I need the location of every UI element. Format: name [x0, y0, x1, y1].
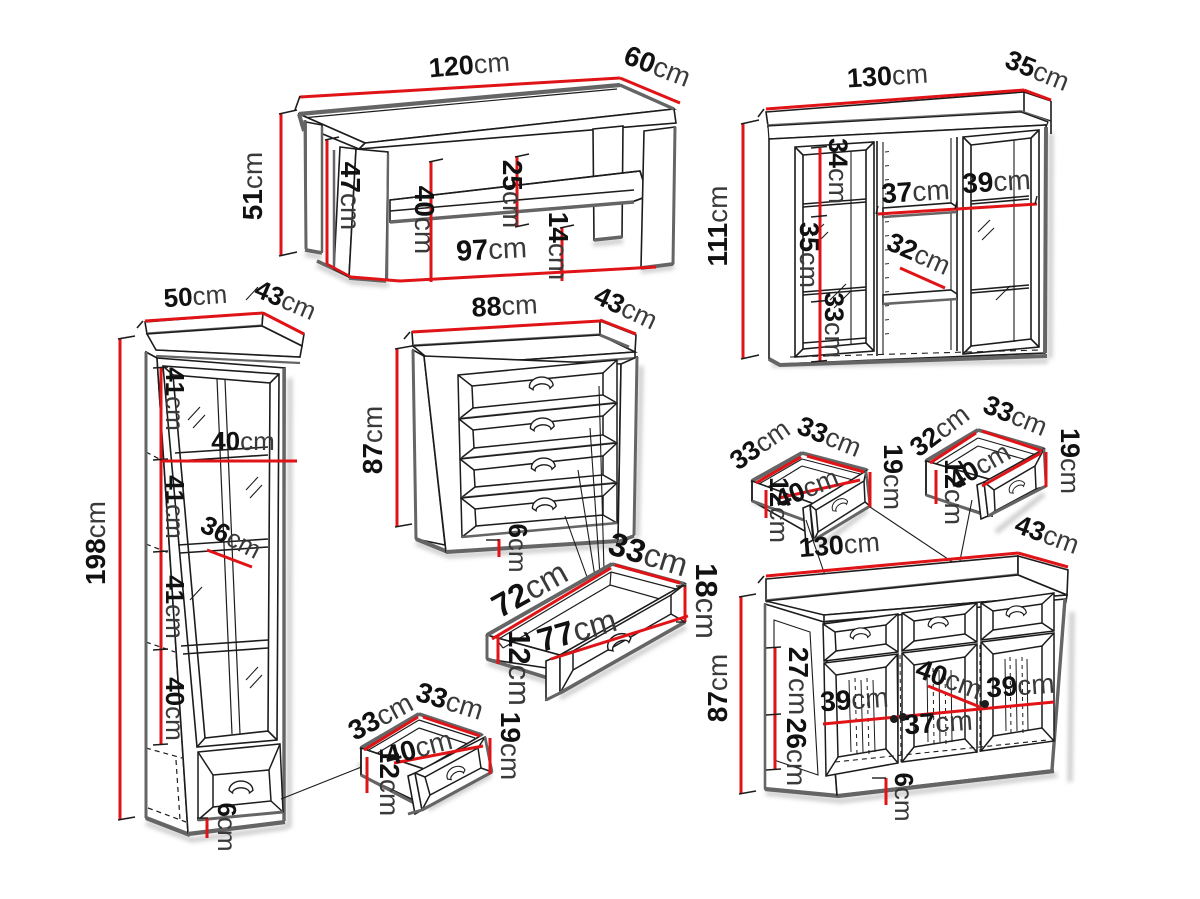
svg-text:50cm: 50cm: [163, 279, 229, 313]
svg-text:6cm: 6cm: [889, 772, 919, 821]
svg-text:40cm: 40cm: [211, 426, 275, 456]
svg-text:37cm: 37cm: [903, 705, 973, 741]
svg-text:19cm: 19cm: [1055, 428, 1085, 494]
svg-text:41cm: 41cm: [160, 475, 190, 539]
svg-text:19cm: 19cm: [878, 444, 908, 510]
svg-text:87cm: 87cm: [702, 654, 733, 722]
svg-text:198cm: 198cm: [80, 501, 111, 585]
svg-text:37cm: 37cm: [880, 174, 950, 209]
svg-text:35cm: 35cm: [794, 222, 824, 288]
svg-text:25cm: 25cm: [497, 160, 528, 228]
svg-text:40cm: 40cm: [160, 677, 190, 741]
svg-text:12cm: 12cm: [502, 630, 537, 706]
svg-text:39cm: 39cm: [985, 668, 1055, 704]
svg-text:39cm: 39cm: [961, 164, 1031, 199]
svg-text:47cm: 47cm: [335, 162, 366, 230]
svg-text:97cm: 97cm: [455, 232, 528, 268]
svg-text:6cm: 6cm: [212, 802, 242, 851]
svg-text:88cm: 88cm: [471, 289, 539, 322]
svg-text:27cm: 27cm: [783, 647, 814, 715]
svg-text:87cm: 87cm: [357, 406, 388, 474]
svg-text:19cm: 19cm: [495, 712, 526, 780]
svg-text:39cm: 39cm: [819, 682, 889, 718]
svg-text:33cm: 33cm: [819, 292, 849, 358]
svg-text:111cm: 111cm: [702, 186, 733, 267]
svg-text:6cm: 6cm: [503, 523, 533, 572]
svg-text:34cm: 34cm: [823, 138, 853, 204]
svg-text:130cm: 130cm: [798, 527, 881, 563]
svg-text:18cm: 18cm: [689, 563, 724, 639]
svg-text:41cm: 41cm: [160, 575, 190, 639]
svg-text:26cm: 26cm: [781, 718, 812, 786]
svg-text:40cm: 40cm: [409, 186, 440, 254]
svg-text:41cm: 41cm: [160, 367, 190, 431]
svg-text:14cm: 14cm: [543, 212, 574, 280]
svg-text:130cm: 130cm: [846, 59, 929, 94]
svg-text:51cm: 51cm: [237, 152, 268, 220]
